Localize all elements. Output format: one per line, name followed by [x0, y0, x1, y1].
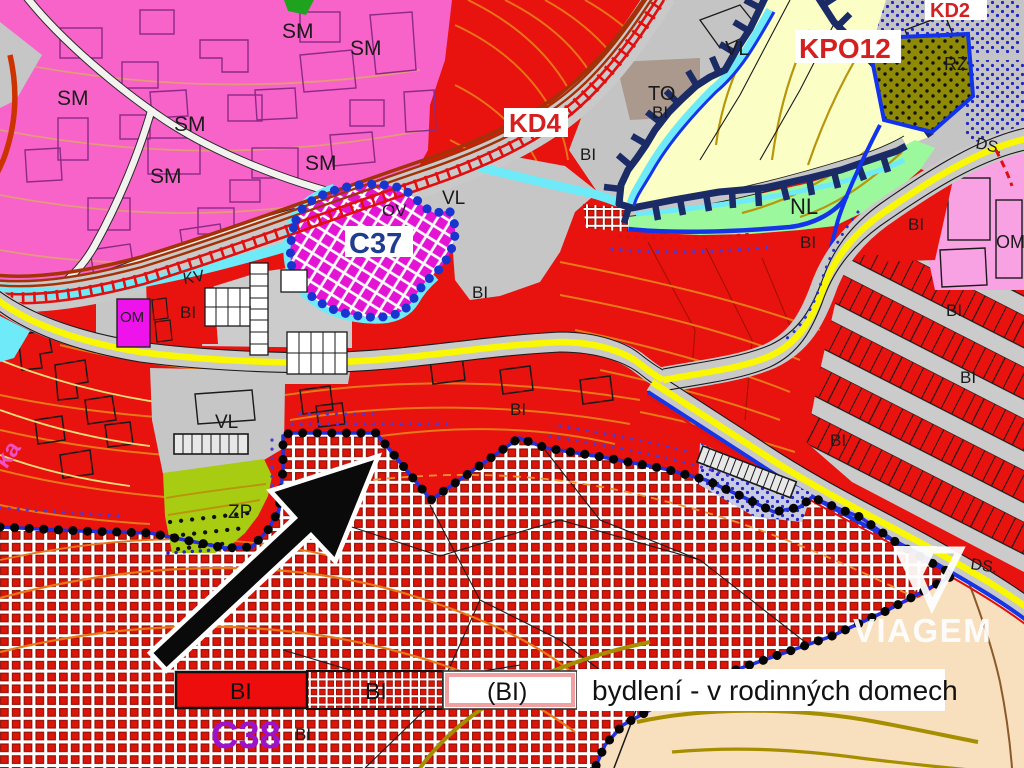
svg-text:BI: BI — [472, 283, 488, 302]
svg-text:BI: BI — [295, 725, 311, 744]
svg-text:BI: BI — [580, 145, 596, 164]
svg-text:OV: OV — [382, 201, 407, 220]
svg-text:BI: BI — [946, 301, 962, 320]
svg-text:BI: BI — [800, 233, 816, 252]
svg-text:ZP: ZP — [228, 502, 252, 523]
svg-text:KPO12: KPO12 — [799, 33, 891, 64]
svg-text:OM: OM — [996, 232, 1024, 252]
svg-text:BI: BI — [365, 678, 387, 704]
svg-text:VL: VL — [442, 188, 465, 209]
svg-text:BI: BI — [908, 215, 924, 234]
svg-text:SM: SM — [350, 37, 382, 60]
svg-text:OM: OM — [120, 309, 144, 326]
svg-text:VL: VL — [725, 38, 749, 60]
svg-text:KD4: KD4 — [509, 108, 562, 138]
svg-text:SM: SM — [174, 113, 206, 136]
svg-text:(BI): (BI) — [487, 678, 527, 706]
svg-text:SM: SM — [282, 20, 314, 43]
svg-text:SM: SM — [150, 165, 182, 188]
svg-text:C37: C37 — [349, 228, 402, 260]
svg-text:VIAGEM: VIAGEM — [853, 612, 992, 649]
svg-text:KD2: KD2 — [930, 0, 970, 22]
svg-text:TO: TO — [648, 83, 675, 105]
svg-text:SM: SM — [305, 152, 337, 175]
svg-text:BI: BI — [180, 303, 196, 322]
svg-text:BI: BI — [960, 368, 976, 387]
svg-text:BI: BI — [510, 400, 526, 419]
svg-text:RZ: RZ — [944, 54, 968, 74]
svg-text:bydlení - v rodinných domech: bydlení - v rodinných domech — [592, 675, 958, 706]
svg-text:VL: VL — [215, 412, 238, 433]
svg-text:BI: BI — [652, 103, 668, 122]
svg-text:BI: BI — [230, 678, 252, 704]
svg-text:NL: NL — [790, 194, 818, 219]
svg-text:BI: BI — [830, 431, 846, 450]
svg-text:C38: C38 — [211, 715, 281, 757]
svg-text:SM: SM — [57, 87, 89, 110]
